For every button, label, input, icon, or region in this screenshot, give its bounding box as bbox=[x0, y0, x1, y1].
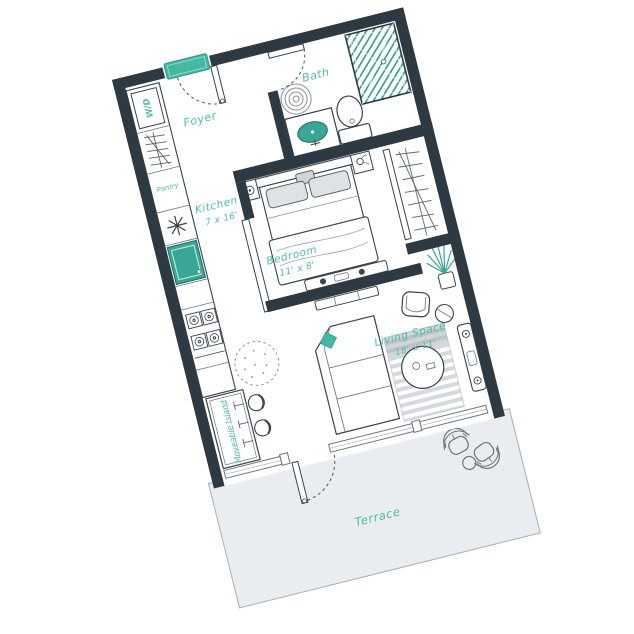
floor-plan: Terrace bbox=[0, 0, 634, 634]
nightstand-right bbox=[350, 151, 373, 174]
armchair bbox=[401, 291, 430, 317]
floor-plan-page: Terrace bbox=[0, 0, 634, 634]
